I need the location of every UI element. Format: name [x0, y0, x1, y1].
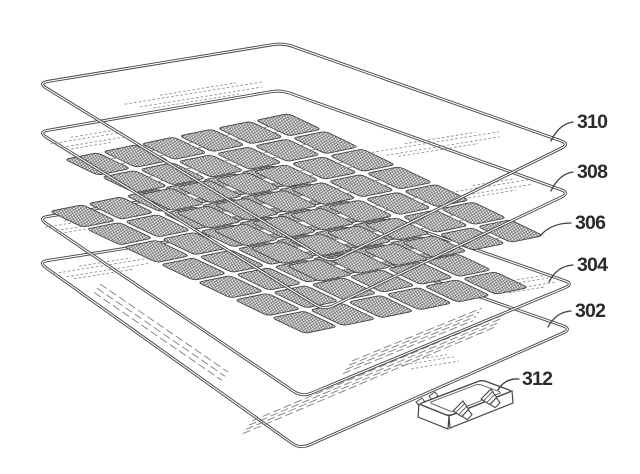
ref-label-312: 312: [522, 368, 553, 390]
ref-label-310: 310: [577, 111, 608, 133]
ref-label-304: 304: [577, 254, 608, 276]
ref-label-308: 308: [577, 161, 608, 183]
ref-label-306: 306: [575, 212, 606, 234]
patent-exploded-view-figure: 310 308 306 304 302 312: [0, 0, 640, 474]
solar-cell-array-306: [52, 114, 541, 333]
figure-canvas: 310 308 306 304 302 312: [0, 0, 640, 474]
reference-numerals: 310 308 306 304 302 312: [522, 111, 608, 390]
junction-box-312: [416, 381, 513, 429]
ref-label-302: 302: [575, 300, 606, 322]
